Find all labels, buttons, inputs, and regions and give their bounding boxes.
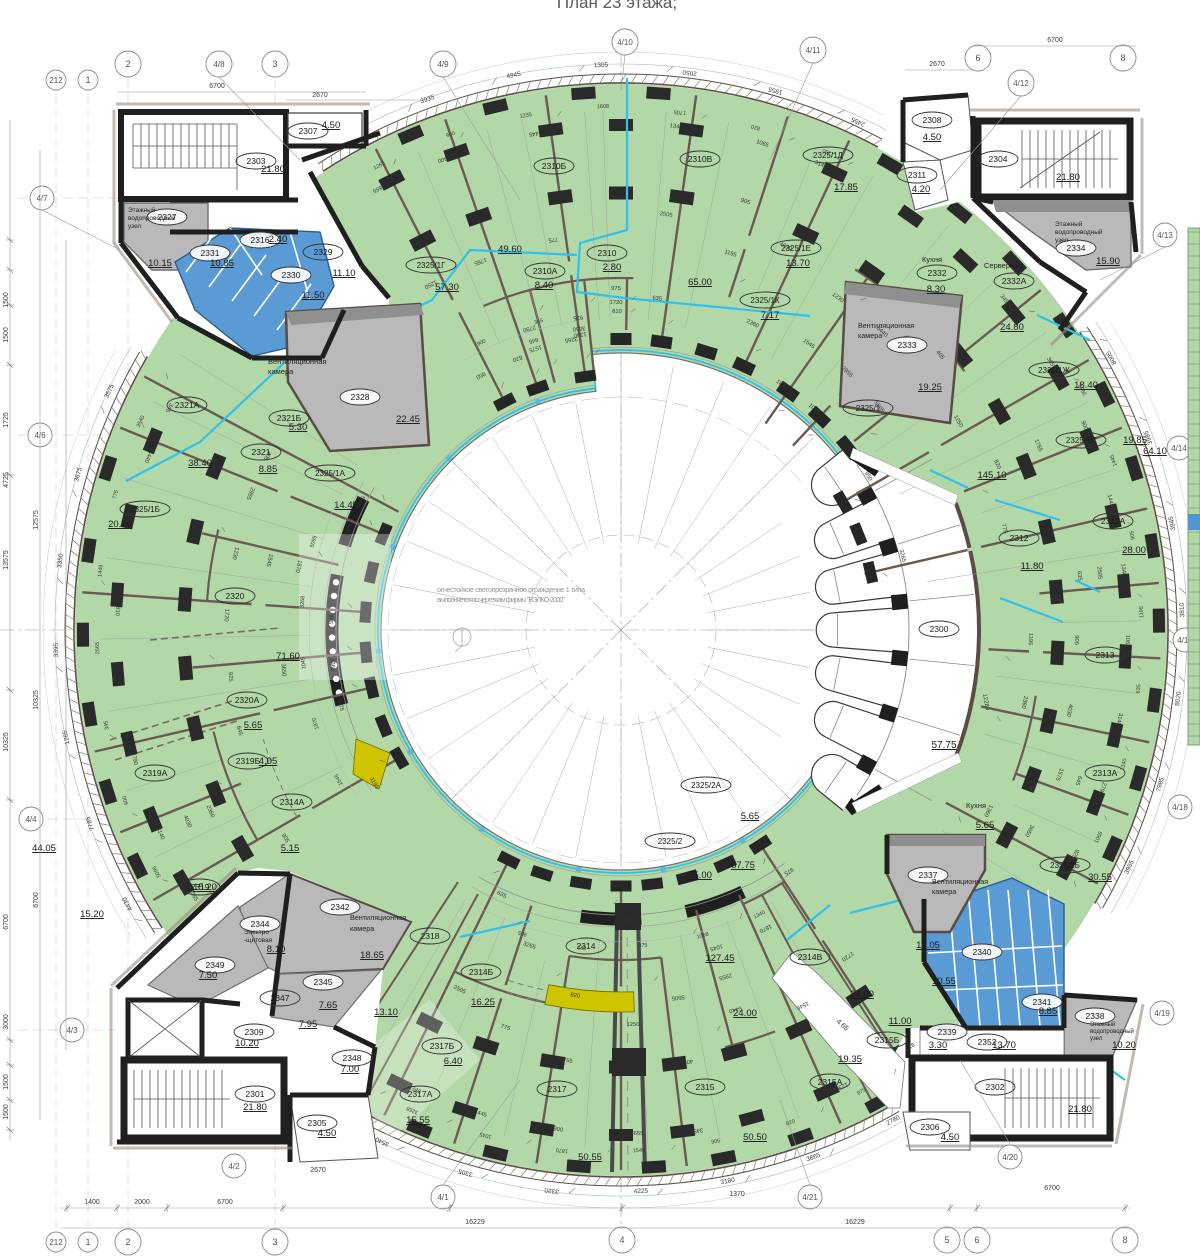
svg-text:4.50: 4.50 (318, 1128, 337, 1139)
svg-text:Этажный: Этажный (1055, 220, 1083, 228)
svg-text:План 23 этажа;: План 23 этажа; (557, 0, 677, 12)
svg-text:2670: 2670 (929, 61, 945, 68)
svg-text:16229: 16229 (845, 1219, 865, 1226)
svg-text:810: 810 (114, 606, 121, 616)
svg-text:925: 925 (573, 314, 583, 321)
svg-text:4: 4 (619, 1235, 624, 1245)
svg-text:2340: 2340 (973, 947, 992, 957)
svg-text:3650: 3650 (279, 663, 286, 676)
svg-text:2319Б: 2319Б (236, 756, 261, 766)
svg-text:5.65: 5.65 (976, 820, 995, 831)
svg-text:44.05: 44.05 (32, 843, 56, 854)
svg-text:17.85: 17.85 (834, 182, 858, 193)
svg-text:1250: 1250 (627, 1022, 640, 1028)
svg-text:3: 3 (272, 59, 277, 69)
svg-text:4/2: 4/2 (228, 1162, 240, 1171)
svg-text:1720: 1720 (610, 300, 623, 306)
svg-text:4.50: 4.50 (941, 1132, 960, 1143)
svg-text:2334: 2334 (1067, 243, 1086, 253)
svg-text:6700: 6700 (1047, 37, 1063, 44)
svg-text:2325/2А: 2325/2А (691, 781, 721, 790)
svg-text:21.80: 21.80 (243, 1102, 267, 1113)
svg-text:925: 925 (227, 672, 234, 682)
svg-text:1720: 1720 (223, 608, 230, 621)
svg-text:5.15: 5.15 (281, 843, 300, 854)
svg-text:2.40: 2.40 (269, 234, 288, 245)
svg-text:2339: 2339 (938, 1027, 957, 1037)
svg-text:4/9: 4/9 (437, 60, 449, 69)
svg-text:10.20: 10.20 (1112, 1040, 1136, 1051)
svg-text:20.40: 20.40 (108, 519, 132, 530)
svg-text:Этажный: Этажный (128, 206, 156, 214)
svg-text:64.10: 64.10 (1143, 446, 1167, 457)
svg-text:2329: 2329 (314, 247, 333, 257)
svg-text:28.00: 28.00 (1122, 545, 1146, 556)
svg-text:1045: 1045 (300, 657, 307, 670)
svg-text:2565: 2565 (95, 642, 101, 654)
svg-text:2333: 2333 (898, 340, 917, 350)
svg-text:50.50: 50.50 (743, 1132, 767, 1143)
svg-text:8.30: 8.30 (927, 284, 946, 295)
svg-text:2316: 2316 (251, 235, 270, 245)
svg-text:24.00: 24.00 (850, 989, 874, 1000)
svg-text:4/13: 4/13 (1157, 231, 1173, 240)
svg-text:2310: 2310 (598, 248, 617, 258)
svg-text:11.10: 11.10 (332, 268, 355, 279)
svg-text:2332А: 2332А (1002, 276, 1027, 286)
svg-text:4/10: 4/10 (617, 38, 633, 47)
svg-text:-щитовая: -щитовая (244, 937, 273, 944)
svg-text:Вентиляционная: Вентиляционная (268, 357, 327, 366)
svg-text:975: 975 (638, 943, 648, 950)
svg-text:2: 2 (125, 59, 130, 69)
svg-text:50.55: 50.55 (578, 1152, 602, 1163)
svg-text:820: 820 (577, 943, 587, 950)
svg-text:Серверная: Серверная (984, 261, 1022, 270)
svg-text:2.80: 2.80 (603, 262, 622, 273)
svg-text:3.30: 3.30 (929, 1040, 948, 1051)
svg-text:Электро: Электро (244, 929, 269, 936)
svg-text:810: 810 (612, 309, 622, 315)
svg-text:19.85: 19.85 (1123, 435, 1147, 446)
svg-text:2328: 2328 (351, 392, 370, 402)
svg-text:975: 975 (611, 286, 621, 292)
svg-text:21.80: 21.80 (1056, 172, 1080, 183)
svg-text:5.30: 5.30 (289, 422, 308, 433)
svg-text:2348: 2348 (343, 1053, 362, 1063)
svg-text:13575: 13575 (3, 550, 10, 570)
svg-text:2310А: 2310А (533, 266, 558, 276)
svg-text:4.20: 4.20 (912, 184, 931, 195)
svg-text:4.50: 4.50 (322, 120, 341, 131)
svg-text:10325: 10325 (33, 690, 40, 710)
svg-text:водопроводный: водопроводный (128, 214, 176, 222)
svg-text:6: 6 (975, 53, 980, 63)
svg-text:2318: 2318 (421, 931, 440, 941)
svg-text:камера: камера (350, 924, 374, 933)
svg-text:6700: 6700 (33, 892, 40, 908)
svg-text:4/8: 4/8 (213, 60, 225, 69)
svg-text:2320: 2320 (226, 591, 245, 601)
svg-text:212: 212 (49, 1238, 63, 1247)
svg-text:2312А: 2312А (1101, 516, 1126, 526)
svg-text:2345: 2345 (314, 977, 333, 987)
svg-text:3395: 3395 (53, 642, 61, 657)
svg-text:11.00: 11.00 (888, 1016, 911, 1027)
svg-text:8.40: 8.40 (535, 280, 554, 291)
svg-text:8.85: 8.85 (1039, 1006, 1058, 1017)
svg-text:13.05: 13.05 (916, 940, 940, 951)
svg-text:1305: 1305 (594, 62, 609, 70)
svg-text:2338: 2338 (1086, 1011, 1105, 1021)
svg-text:4.05: 4.05 (259, 756, 278, 767)
svg-text:16229: 16229 (465, 1219, 485, 1226)
svg-text:2000: 2000 (134, 1199, 150, 1206)
svg-text:16.25: 16.25 (471, 997, 495, 1008)
svg-text:57.75: 57.75 (931, 740, 956, 751)
svg-text:4/20: 4/20 (1002, 1153, 1018, 1162)
svg-text:4.50: 4.50 (923, 132, 942, 143)
svg-text:2309: 2309 (245, 1027, 264, 1037)
svg-text:2314В: 2314В (798, 952, 823, 962)
svg-text:21.80: 21.80 (1068, 1104, 1092, 1115)
svg-text:огнестойкое светопрозрачное ог: огнестойкое светопрозрачное ограждение 1… (437, 585, 586, 594)
svg-text:49.60: 49.60 (498, 244, 522, 255)
svg-text:4/7: 4/7 (36, 194, 48, 203)
svg-text:5.65: 5.65 (741, 811, 760, 822)
svg-text:2344: 2344 (251, 919, 270, 929)
svg-text:6: 6 (974, 1235, 979, 1245)
svg-text:7.00: 7.00 (341, 1064, 360, 1075)
svg-text:4/14: 4/14 (1171, 444, 1187, 453)
svg-text:2325/1К: 2325/1К (750, 296, 779, 305)
svg-text:7.17: 7.17 (761, 310, 780, 321)
svg-text:4/1: 4/1 (437, 1193, 449, 1202)
svg-text:1608: 1608 (597, 104, 609, 110)
svg-text:5: 5 (944, 1235, 949, 1245)
svg-text:4/11: 4/11 (806, 46, 822, 55)
svg-text:10.55: 10.55 (932, 976, 956, 987)
svg-text:2325/2: 2325/2 (658, 837, 683, 846)
svg-text:2321А: 2321А (175, 400, 200, 410)
svg-text:635: 635 (1136, 684, 1143, 694)
svg-text:15.20: 15.20 (193, 882, 217, 893)
svg-text:2312: 2312 (1010, 533, 1029, 543)
svg-text:выполняется по чертежам фирмы: выполняется по чертежам фирмы "ВЭЛКО-200… (437, 595, 565, 604)
svg-text:71.60: 71.60 (276, 651, 300, 662)
svg-text:7.95: 7.95 (299, 1019, 318, 1030)
svg-text:2320А: 2320А (235, 695, 260, 705)
svg-text:2301: 2301 (246, 1089, 265, 1099)
svg-text:1195: 1195 (1027, 633, 1034, 646)
svg-text:635: 635 (1076, 571, 1083, 581)
svg-text:1: 1 (85, 1237, 90, 1247)
svg-text:2319А: 2319А (143, 768, 168, 778)
svg-text:13.10: 13.10 (374, 1007, 398, 1018)
svg-text:2313: 2313 (1096, 650, 1115, 660)
svg-text:1360: 1360 (328, 658, 335, 671)
svg-text:1500: 1500 (3, 1074, 10, 1090)
svg-text:4/18: 4/18 (1172, 803, 1188, 812)
svg-text:2347: 2347 (271, 993, 290, 1003)
svg-text:405: 405 (683, 1057, 693, 1064)
svg-text:1400: 1400 (84, 1199, 100, 1206)
svg-text:24.80: 24.80 (1000, 322, 1024, 333)
svg-text:2310Б: 2310Б (542, 161, 567, 171)
svg-text:3655: 3655 (631, 1131, 644, 1137)
svg-text:6700: 6700 (3, 914, 10, 930)
svg-text:2317: 2317 (548, 1084, 567, 1094)
svg-text:2314А: 2314А (280, 797, 305, 807)
svg-text:2311: 2311 (908, 170, 927, 180)
svg-text:4/19: 4/19 (1154, 1009, 1170, 1018)
svg-text:1870: 1870 (555, 1146, 568, 1153)
svg-text:1705: 1705 (673, 108, 686, 115)
svg-text:10.20: 10.20 (235, 1038, 259, 1049)
svg-text:6.40: 6.40 (444, 1056, 463, 1067)
svg-text:1370: 1370 (729, 1191, 745, 1198)
svg-text:водопроводный: водопроводный (1090, 1028, 1134, 1035)
svg-text:7.50: 7.50 (199, 970, 218, 981)
svg-text:12575: 12575 (33, 510, 40, 530)
svg-text:5.65: 5.65 (244, 720, 263, 731)
svg-text:127.45: 127.45 (705, 953, 734, 964)
svg-text:2313А: 2313А (1093, 768, 1118, 778)
svg-text:Вентиляционная: Вентиляционная (858, 321, 914, 330)
svg-text:2325/1Г: 2325/1Г (417, 261, 446, 270)
svg-text:6700: 6700 (209, 83, 225, 90)
svg-text:1500: 1500 (3, 327, 10, 343)
svg-text:1500: 1500 (3, 292, 10, 308)
svg-text:15.20: 15.20 (80, 909, 104, 920)
svg-text:4225: 4225 (634, 1188, 649, 1196)
svg-text:21.80: 21.80 (261, 164, 285, 175)
svg-text:30.55: 30.55 (1088, 872, 1112, 883)
svg-text:2325/1А: 2325/1А (315, 469, 345, 478)
svg-text:8.85: 8.85 (259, 464, 278, 475)
svg-text:1500: 1500 (3, 1104, 10, 1120)
svg-text:905: 905 (1073, 635, 1079, 645)
svg-text:камера: камера (932, 887, 956, 896)
svg-text:19.35: 19.35 (838, 1054, 862, 1065)
svg-text:2670: 2670 (312, 92, 328, 99)
svg-text:2505: 2505 (1095, 566, 1102, 579)
svg-text:1340: 1340 (1119, 563, 1126, 576)
svg-text:2325/2Б: 2325/2Б (1050, 861, 1080, 870)
svg-text:6700: 6700 (217, 1199, 233, 1206)
svg-text:8.10: 8.10 (267, 944, 286, 955)
svg-text:3: 3 (272, 1237, 277, 1247)
svg-text:1545: 1545 (633, 1148, 645, 1154)
svg-text:2330: 2330 (282, 270, 301, 280)
svg-text:водопроводный: водопроводный (1055, 228, 1103, 236)
svg-text:4/21: 4/21 (802, 1193, 818, 1202)
svg-text:2342: 2342 (331, 902, 350, 912)
svg-text:3000: 3000 (3, 1014, 10, 1030)
svg-text:15.55: 15.55 (406, 1115, 430, 1126)
svg-text:узел: узел (1090, 1036, 1103, 1042)
svg-text:1065: 1065 (1124, 634, 1131, 647)
svg-text:2332: 2332 (928, 268, 947, 278)
svg-text:Кухня: Кухня (922, 255, 942, 264)
svg-text:2325/1И: 2325/1И (1066, 436, 1096, 445)
svg-text:2310В: 2310В (688, 154, 713, 164)
svg-text:2331: 2331 (201, 248, 220, 258)
svg-text:10.85: 10.85 (210, 258, 234, 269)
svg-text:Этажный: Этажный (1090, 1021, 1115, 1028)
svg-text:2306: 2306 (921, 1122, 940, 1132)
svg-text:2314Б: 2314Б (469, 967, 494, 977)
svg-text:35.00: 35.00 (688, 870, 712, 881)
svg-text:345: 345 (693, 1126, 703, 1133)
svg-text:15.90: 15.90 (1096, 256, 1120, 267)
svg-text:4/3: 4/3 (66, 1026, 78, 1035)
svg-text:1725: 1725 (3, 412, 10, 428)
svg-text:8: 8 (1122, 1235, 1127, 1245)
svg-text:2: 2 (125, 1237, 130, 1247)
svg-text:11.80: 11.80 (1020, 561, 1043, 572)
svg-text:38.40: 38.40 (188, 458, 212, 469)
svg-text:Кухня: Кухня (966, 801, 986, 810)
svg-text:2317Б: 2317Б (430, 1041, 455, 1051)
svg-text:1449: 1449 (97, 564, 104, 577)
svg-text:2308: 2308 (923, 115, 942, 125)
svg-text:2307: 2307 (299, 126, 318, 136)
svg-text:4/12: 4/12 (1013, 79, 1029, 88)
svg-text:1: 1 (85, 75, 90, 85)
svg-text:1195: 1195 (1139, 606, 1145, 618)
svg-text:19.25: 19.25 (918, 382, 942, 393)
svg-text:узел: узел (128, 223, 142, 230)
svg-text:2325/1Б: 2325/1Б (130, 505, 160, 514)
svg-text:57.75: 57.75 (731, 860, 755, 871)
svg-text:18.65: 18.65 (360, 950, 384, 961)
svg-text:13.70: 13.70 (786, 258, 810, 269)
svg-text:11.50: 11.50 (301, 290, 324, 301)
svg-text:975: 975 (327, 614, 334, 624)
svg-text:Вентиляционная: Вентиляционная (350, 913, 406, 922)
svg-text:7.65: 7.65 (319, 1000, 338, 1011)
svg-text:145.10: 145.10 (977, 470, 1006, 481)
svg-text:4/4: 4/4 (25, 815, 37, 824)
svg-text:6700: 6700 (1044, 1185, 1060, 1192)
svg-text:Вентиляционная: Вентиляционная (932, 877, 988, 886)
svg-text:3268: 3268 (299, 596, 306, 609)
svg-text:2300: 2300 (930, 624, 949, 634)
svg-text:камера: камера (268, 367, 294, 376)
svg-text:8: 8 (1120, 53, 1125, 63)
svg-text:22.45: 22.45 (396, 414, 420, 425)
svg-text:2670: 2670 (310, 1167, 326, 1174)
svg-text:10.15: 10.15 (148, 258, 172, 269)
svg-text:4725: 4725 (3, 472, 10, 488)
svg-text:2315Б: 2315Б (875, 1035, 900, 1045)
svg-text:узел: узел (1055, 237, 1069, 244)
svg-text:212: 212 (49, 76, 63, 85)
svg-text:2304: 2304 (989, 154, 1008, 164)
svg-text:10325: 10325 (3, 732, 10, 752)
svg-text:2315: 2315 (696, 1082, 715, 1092)
svg-text:3810: 3810 (1179, 602, 1187, 617)
svg-text:65.00: 65.00 (688, 277, 712, 288)
svg-text:2302: 2302 (986, 1082, 1005, 1092)
svg-text:950: 950 (625, 918, 635, 924)
svg-text:2349: 2349 (206, 960, 225, 970)
svg-text:14.45: 14.45 (334, 500, 358, 511)
svg-text:2305: 2305 (308, 1118, 327, 1128)
svg-text:13.70: 13.70 (992, 1040, 1016, 1051)
